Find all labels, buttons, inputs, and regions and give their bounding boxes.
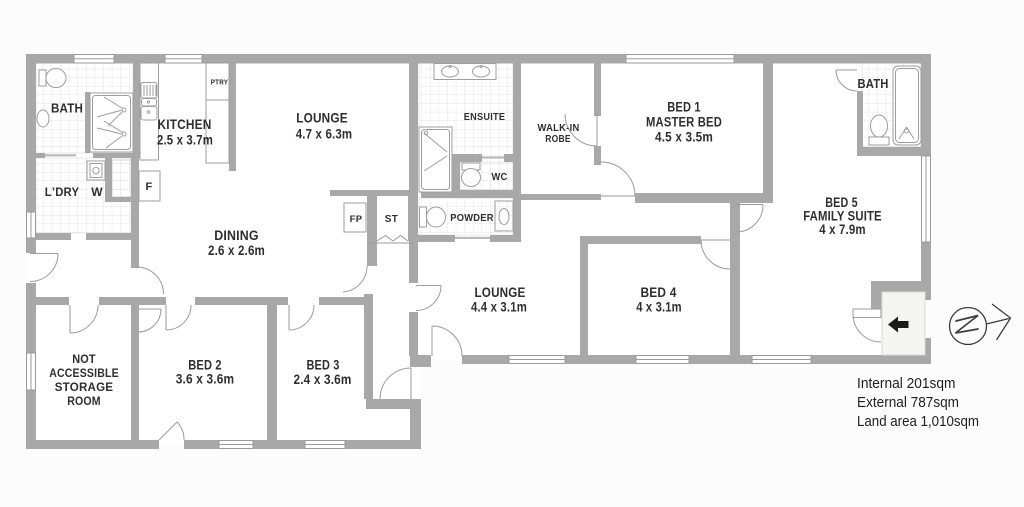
svg-text:External 787sqm: External 787sqm [857,395,959,411]
svg-text:PTRY: PTRY [211,78,229,87]
svg-text:BATH: BATH [51,101,83,116]
svg-text:LOUNGE: LOUNGE [296,111,348,126]
svg-text:Internal 201sqm: Internal 201sqm [857,376,956,392]
svg-text:BED 2: BED 2 [188,358,222,373]
svg-text:ACCESSIBLE: ACCESSIBLE [49,366,119,380]
svg-text:BATH: BATH [858,76,889,91]
svg-text:ROOM: ROOM [67,394,101,408]
svg-text:2.6 x 2.6m: 2.6 x 2.6m [208,243,265,258]
svg-text:WC: WC [492,171,508,183]
svg-text:BED 4: BED 4 [641,285,677,300]
svg-text:ST: ST [385,214,398,225]
svg-text:Land area 1,010sqm: Land area 1,010sqm [857,414,979,430]
svg-text:LʼDRY: LʼDRY [45,185,80,199]
svg-text:ENSUITE: ENSUITE [464,111,506,123]
svg-text:W: W [91,185,103,199]
svg-text:DINING: DINING [214,228,259,243]
svg-text:LOUNGE: LOUNGE [475,285,526,300]
svg-text:FP: FP [350,214,363,225]
svg-text:4 x 3.1m: 4 x 3.1m [636,300,682,315]
svg-text:MASTER BED: MASTER BED [646,115,722,130]
svg-text:BED 3: BED 3 [307,358,340,373]
svg-text:4.5 x 3.5m: 4.5 x 3.5m [655,130,713,145]
svg-text:BED 1: BED 1 [667,100,701,115]
svg-text:4.4 x 3.1m: 4.4 x 3.1m [471,300,527,315]
svg-text:2.5 x 3.7m: 2.5 x 3.7m [157,133,213,148]
svg-text:NOT: NOT [72,352,96,366]
svg-text:STORAGE: STORAGE [55,380,114,394]
svg-text:ROBE: ROBE [545,133,571,145]
svg-text:F: F [145,181,152,193]
svg-text:POWDER: POWDER [450,212,494,224]
svg-text:2.4 x 3.6m: 2.4 x 3.6m [294,372,352,387]
svg-text:4 x 7.9m: 4 x 7.9m [819,222,866,237]
svg-text:3.6 x 3.6m: 3.6 x 3.6m [176,372,235,387]
svg-text:4.7 x 6.3m: 4.7 x 6.3m [296,127,353,142]
svg-text:KITCHEN: KITCHEN [158,117,212,132]
